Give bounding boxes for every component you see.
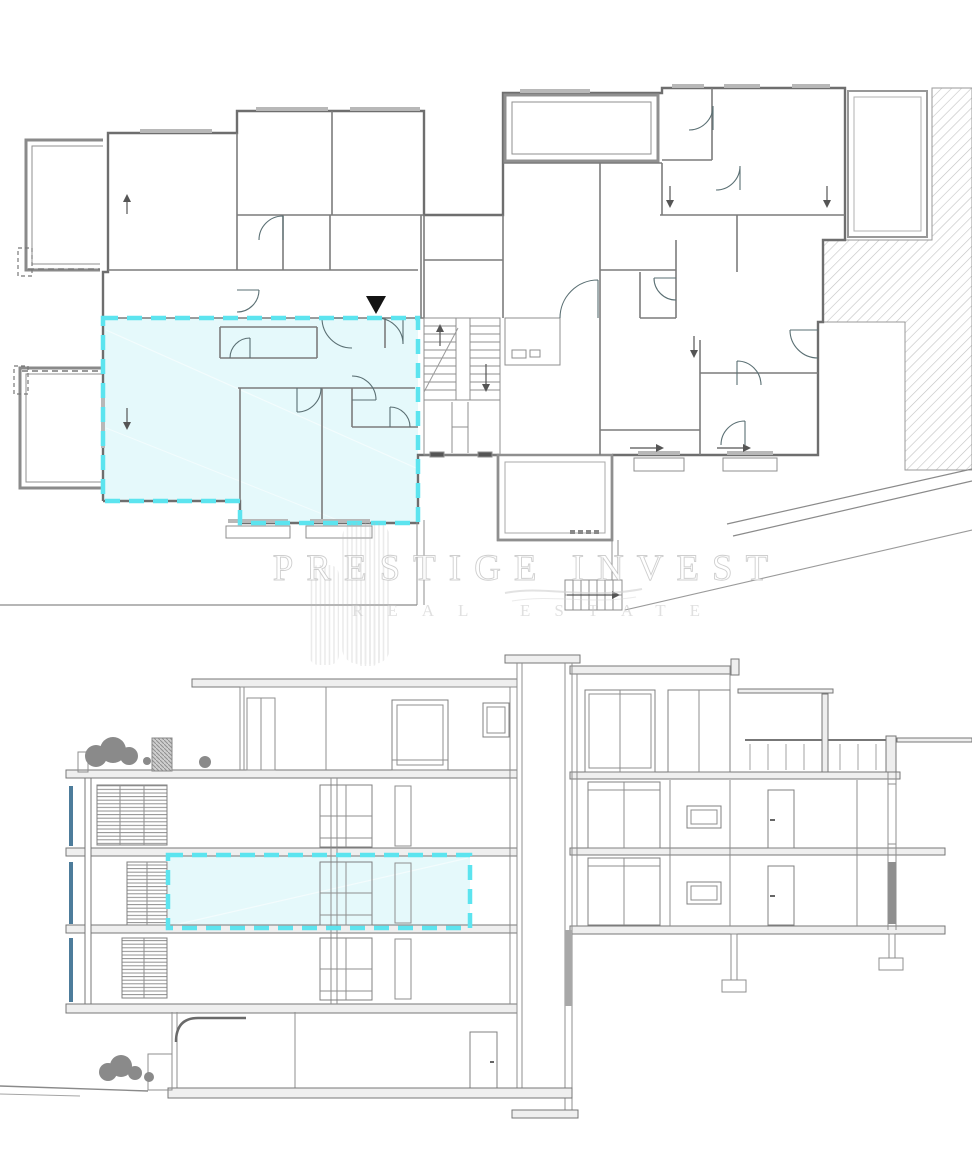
terrace-top-middle	[505, 95, 658, 161]
cross-section	[0, 655, 972, 1118]
right-roof	[570, 666, 738, 674]
stairwell	[424, 318, 500, 457]
louvre-shutters	[97, 785, 167, 998]
penthouse-roof	[192, 679, 517, 687]
balcony-top-left	[18, 140, 103, 276]
watermark-title: PRESTIGE INVEST	[273, 548, 781, 589]
right-wing-windows	[585, 690, 896, 925]
planter	[152, 738, 172, 771]
basement	[148, 1012, 572, 1098]
roof-terrace-railing	[745, 694, 896, 772]
shaft-roof	[505, 655, 580, 663]
watermark: PRESTIGE INVEST REAL ESTATE	[273, 522, 781, 666]
penthouse-glazing	[247, 698, 509, 770]
columns-footings	[722, 934, 903, 992]
drawing-canvas: PRESTIGE INVEST REAL ESTATE	[0, 0, 972, 1174]
floor-slabs	[66, 655, 972, 1013]
terrace-top-right	[848, 91, 927, 237]
glass-edge-accents	[69, 786, 73, 1002]
floor-plan	[0, 86, 972, 610]
entrance-marker-triangle	[366, 296, 386, 314]
architectural-drawing-page: PRESTIGE INVEST REAL ESTATE	[0, 0, 972, 1174]
ground-lines	[0, 1086, 148, 1096]
highlighted-apartment-area	[103, 318, 418, 523]
canopy	[738, 689, 833, 693]
elevator-shaft	[512, 663, 578, 1118]
wc-room	[505, 318, 560, 365]
terrace-bottom-middle	[498, 455, 612, 540]
balcony-mid-left	[14, 366, 103, 488]
watermark-logo-towers	[309, 522, 390, 666]
watermark-subtitle: REAL ESTATE	[352, 601, 724, 620]
